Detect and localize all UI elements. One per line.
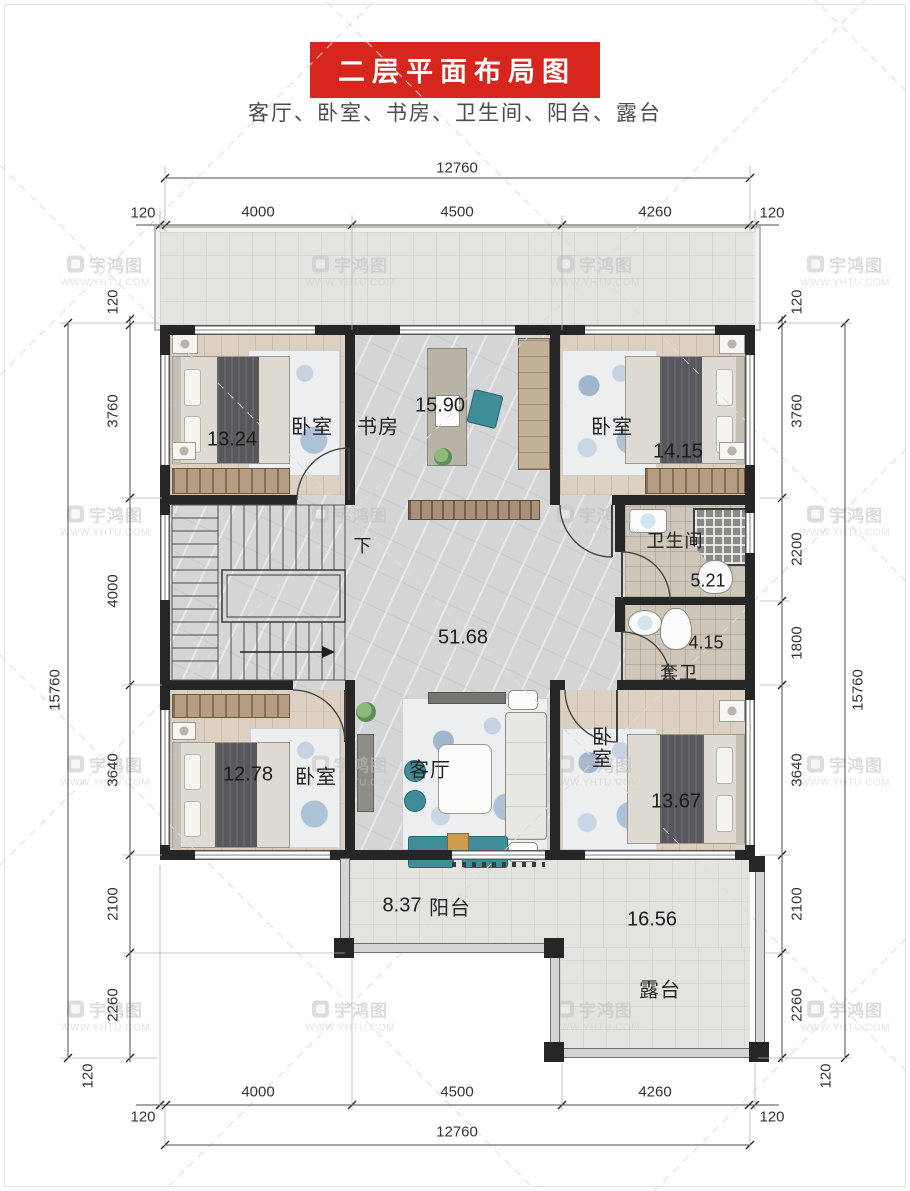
area-bedroom-tl: 13.24 [207,429,257,452]
pillow [716,369,733,406]
dim-right-120t: 120 [789,289,806,314]
dim-bottom-4500: 4500 [440,1084,473,1101]
wall [550,680,560,860]
dim-bottom-total: 12760 [436,1124,478,1141]
pillow [716,795,733,832]
wardrobe [645,468,745,494]
stairs-down-label: 下 [354,532,373,558]
dim-right-1800: 1800 [789,626,806,659]
parapet-post [334,938,354,958]
dim-bottom-120r: 120 [759,1109,784,1126]
dim-right-3760: 3760 [789,394,806,427]
dim-right-120b: 120 [818,1063,835,1088]
wall [345,325,355,505]
pillow [184,369,201,406]
wall [160,680,293,690]
window [160,710,170,845]
study-cabinet [518,338,550,470]
dim-left-total: 15760 [47,669,64,711]
dim-right-2260: 2260 [789,988,806,1021]
area-bathroom: 5.21 [690,571,725,592]
window [585,850,735,860]
terrace-parapet [550,1048,765,1058]
dim-top-4260: 4260 [638,204,671,221]
dim-top-4500: 4500 [440,204,473,221]
room-bedroom-bl: 卧室 [295,761,337,790]
page-title-banner: 二层平面布局图 [310,42,600,98]
wardrobe [172,468,290,494]
blanket [215,743,257,847]
room-living: 客厅 [409,754,451,783]
balcony-parapet [340,943,560,953]
dim-left-4000: 4000 [105,574,122,607]
window [195,850,330,860]
page-subtitle: 客厅、卧室、书房、卫生间、阳台、露台 [248,97,662,127]
wall [745,325,755,355]
pouf [404,790,426,812]
plant [356,702,376,722]
wall [160,325,170,355]
room-bedroom-tl: 卧室 [291,411,333,440]
nightstand [172,442,196,460]
bed [627,734,745,844]
page-title: 二层平面布局图 [338,57,576,87]
wall [550,325,560,505]
dim-left-3640: 3640 [105,753,122,786]
nightstand [172,722,196,740]
wall [745,553,755,700]
window [160,355,170,465]
dim-bottom-4260: 4260 [638,1084,671,1101]
hall-sideboard [408,500,540,520]
dim-left-120b: 120 [80,1063,97,1088]
area-hall: 51.68 [438,627,488,650]
wall [612,495,755,505]
room-bathroom: 卫生间 [647,527,704,553]
dim-left-2260: 2260 [105,988,122,1021]
side-table [508,690,538,710]
room-bedroom-tr: 卧室 [591,411,633,440]
wardrobe [172,694,290,718]
nightstand [719,442,745,460]
wall [160,465,170,515]
wall [160,845,170,860]
window [745,513,755,553]
pillow [184,754,201,790]
top-roof-terrace-floor [160,232,755,325]
window [160,515,170,600]
dim-right-2200: 2200 [789,532,806,565]
parapet-post [544,938,564,958]
room-terrace: 露台 [639,974,681,1003]
dim-right-2100: 2100 [789,887,806,920]
dim-right-total: 15760 [850,669,867,711]
wall [345,680,355,860]
dim-top-120r: 120 [759,205,784,222]
window [400,325,515,335]
nightstand [719,334,745,354]
ensuite-toilet [660,608,692,650]
window [745,355,755,465]
window [195,325,315,335]
sliding-door-track [452,862,545,867]
dim-bottom-4000: 4000 [241,1084,274,1101]
wall [745,465,755,513]
wall [315,325,400,335]
wall [160,600,170,710]
pillow [184,801,201,837]
area-bedroom-tr: 14.15 [653,441,703,464]
window [745,700,755,845]
dim-top-4000: 4000 [241,204,274,221]
pillow [716,747,733,784]
dim-left-3760: 3760 [105,394,122,427]
room-balcony: 阳台 [429,892,471,921]
parapet-post [749,1042,769,1062]
area-study: 15.90 [415,395,465,418]
bed-headboard [173,743,181,849]
tv-bench [428,692,506,704]
wall [160,495,297,505]
dim-right-3640: 3640 [789,753,806,786]
dim-top-120l: 120 [130,205,155,222]
dim-bottom-120l: 120 [130,1109,155,1126]
blanket [660,735,704,843]
nightstand [719,700,745,722]
wall [550,680,565,690]
room-bedroom-br: 卧室 [586,726,615,770]
nightstand [172,334,198,354]
dim-left-2100: 2100 [105,887,122,920]
area-bedroom-br: 13.67 [651,791,701,814]
parapet-post [749,856,765,872]
bed-headboard [736,735,744,845]
area-bedroom-bl: 12.78 [223,764,273,787]
window [585,325,715,335]
ensuite-sink [628,610,662,636]
room-ensuite: 套卫 [660,659,698,685]
area-balcony: 8.37 [383,895,422,918]
plant [434,448,452,466]
window [452,850,545,860]
sofa [505,712,547,840]
floor-plan-page: 二层平面布局图 客厅、卧室、书房、卫生间、阳台、露台 [0,0,910,1191]
area-terrace: 16.56 [627,909,677,932]
dim-top-total: 12760 [436,160,478,177]
dim-left-120t: 120 [105,289,122,314]
terrace-parapet [755,858,765,1058]
bed [172,742,290,848]
area-ensuite: 4.15 [688,633,723,654]
console-table [357,734,374,812]
terrace-parapet [550,943,560,1058]
room-study: 书房 [357,411,399,440]
wall [615,495,625,552]
wall [615,597,755,605]
parapet-post [544,1042,564,1062]
